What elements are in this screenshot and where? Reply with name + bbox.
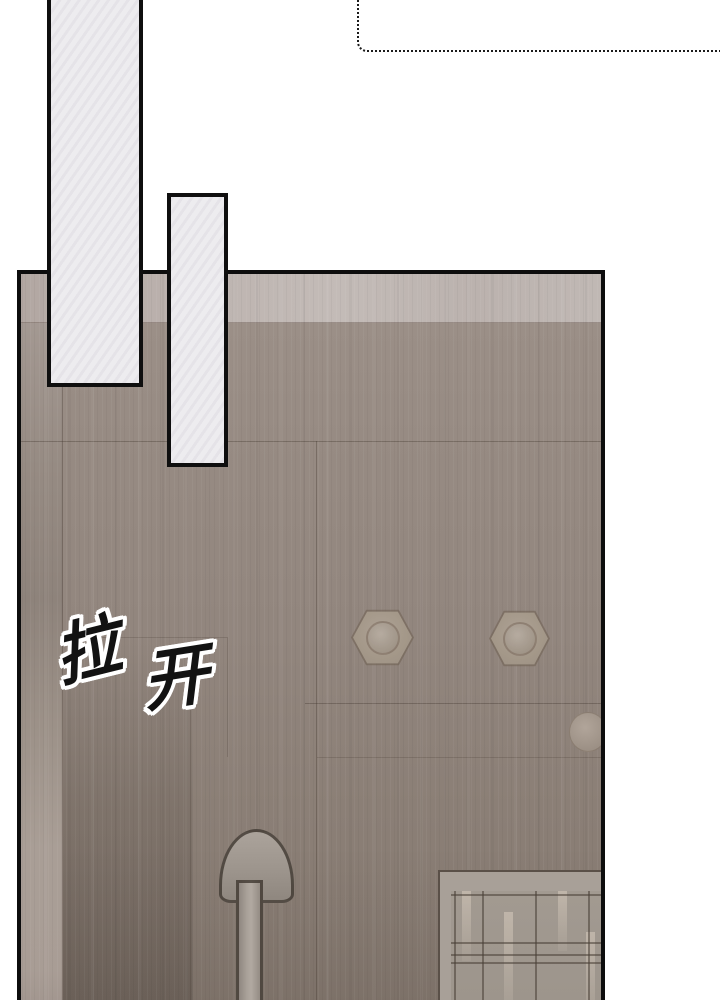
window-grid-line	[451, 894, 601, 896]
window-grid-line	[454, 891, 456, 1000]
window-glass-streak	[504, 912, 513, 1000]
speech-bubble-small	[167, 193, 228, 467]
hex-bolt-left-circle	[366, 621, 400, 655]
door-seam-vertical-short	[227, 637, 228, 757]
sfx-char-kai: 开	[144, 639, 218, 717]
sfx-char-la: 拉	[60, 608, 126, 693]
window-grid-line	[451, 954, 601, 956]
door-seam-vertical-center	[316, 441, 317, 1000]
comic-page: 拉 开	[0, 0, 720, 1000]
window-grid-line	[451, 942, 601, 944]
door-seam-horizontal-lower	[317, 757, 601, 758]
door-handle-bar	[236, 880, 263, 1000]
hex-bolt-right-circle	[503, 622, 537, 656]
window-grid-line	[588, 891, 590, 1000]
door-window	[438, 870, 601, 1000]
window-grid-line	[482, 891, 484, 1000]
dashed-speech-bubble-corner	[357, 0, 720, 52]
door-seam-horizontal-upper	[21, 441, 601, 442]
window-glass-streak	[462, 891, 471, 961]
window-pane	[451, 891, 601, 1000]
door-seam-horizontal-mid	[305, 703, 601, 704]
window-grid-line	[535, 891, 537, 1000]
window-grid-line	[451, 962, 601, 964]
round-bolt	[569, 712, 601, 752]
speech-bubble-tall	[47, 0, 143, 387]
door-seam-vertical-left	[190, 700, 191, 1000]
